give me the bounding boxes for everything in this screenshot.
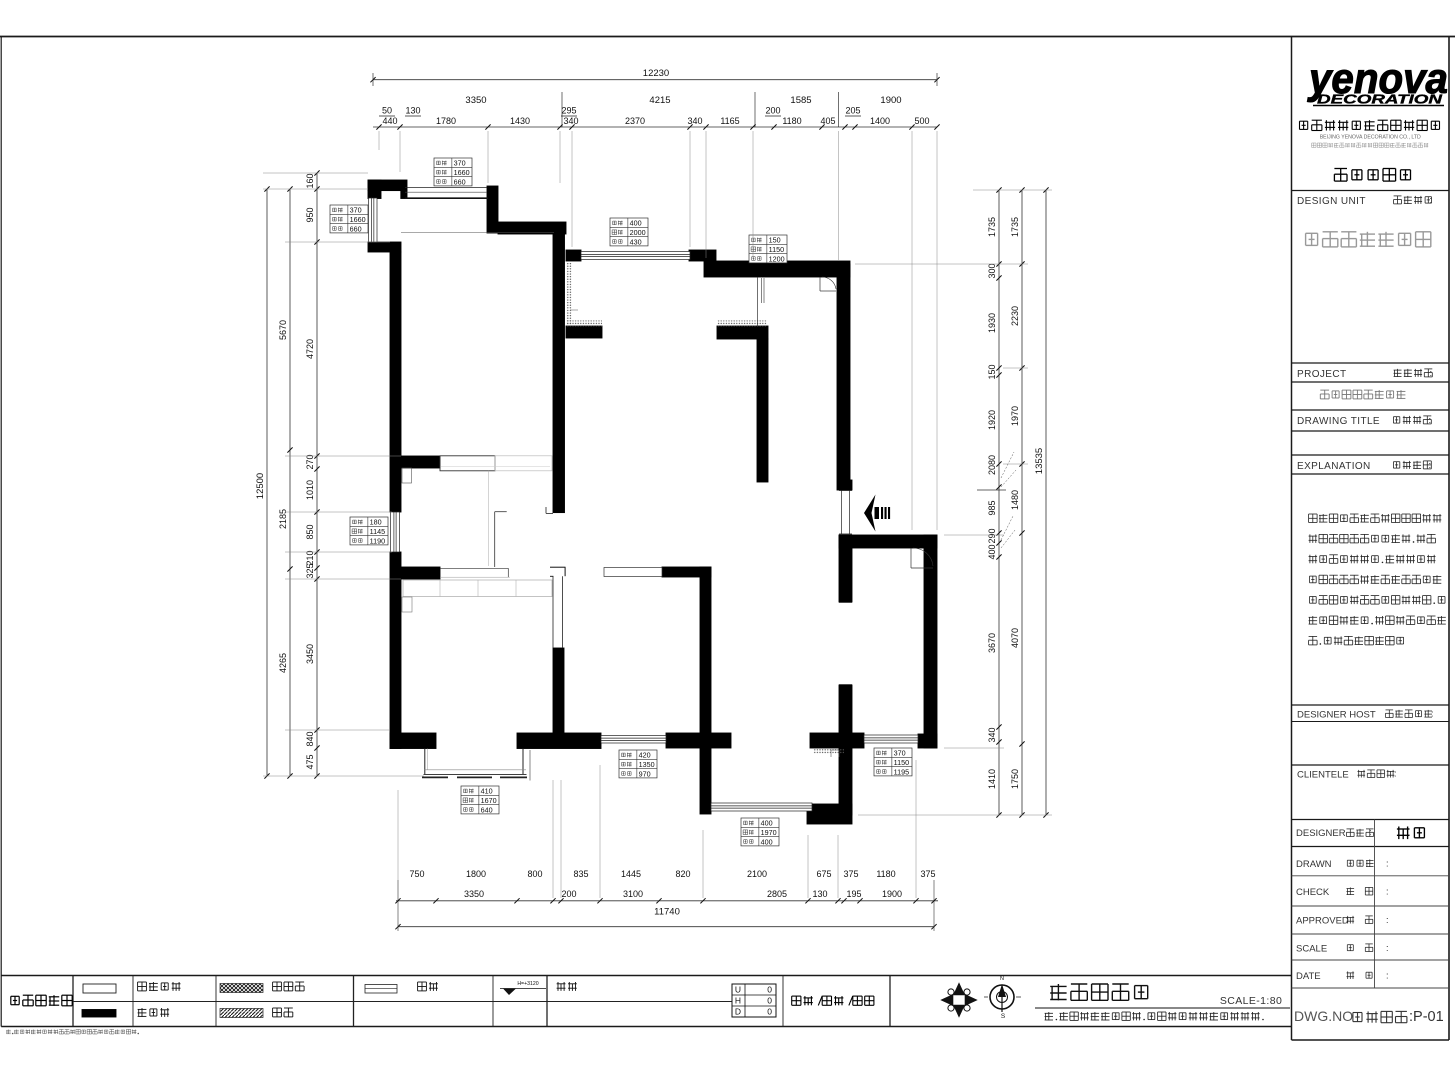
- svg-text:PROJECT: PROJECT: [1297, 369, 1346, 380]
- svg-text:3350: 3350: [464, 889, 484, 899]
- svg-text:50: 50: [382, 106, 392, 116]
- svg-text::: :: [1429, 415, 1432, 426]
- svg-text:200: 200: [561, 889, 576, 899]
- svg-text:1180: 1180: [782, 116, 801, 126]
- svg-text:150: 150: [987, 364, 997, 379]
- svg-text:475: 475: [305, 754, 315, 769]
- svg-text:1445: 1445: [621, 869, 641, 879]
- svg-text:DATE: DATE: [1296, 971, 1321, 982]
- svg-text:2000: 2000: [630, 228, 646, 237]
- svg-text:4265: 4265: [278, 653, 288, 673]
- svg-text:1660: 1660: [350, 215, 366, 224]
- svg-text:1010: 1010: [305, 480, 315, 500]
- svg-text:210: 210: [305, 550, 315, 565]
- svg-text:150: 150: [769, 236, 781, 245]
- svg-text:1660: 1660: [454, 168, 470, 177]
- svg-text:3100: 3100: [623, 889, 643, 899]
- svg-text:EXPLANATION: EXPLANATION: [1297, 461, 1371, 472]
- svg-text:1150: 1150: [894, 758, 909, 767]
- svg-text:405: 405: [820, 116, 835, 126]
- svg-text:3450: 3450: [305, 644, 315, 664]
- svg-text:1735: 1735: [987, 217, 997, 237]
- svg-text:1670: 1670: [481, 796, 497, 805]
- svg-text:APPROVED: APPROVED: [1296, 916, 1349, 927]
- svg-text:1350: 1350: [639, 760, 655, 769]
- svg-text:660: 660: [454, 177, 466, 186]
- svg-text:U: U: [735, 985, 741, 995]
- svg-text:D: D: [735, 1007, 741, 1017]
- svg-text:12500: 12500: [255, 473, 266, 499]
- svg-text:270: 270: [305, 454, 315, 469]
- svg-text:820: 820: [675, 869, 690, 879]
- svg-text::: :: [1369, 827, 1372, 837]
- svg-text:DRAWN: DRAWN: [1296, 859, 1332, 870]
- svg-text:985: 985: [987, 500, 997, 515]
- svg-text:N: N: [1000, 976, 1004, 982]
- svg-text:200: 200: [765, 106, 780, 116]
- svg-text::: :: [1386, 943, 1389, 953]
- svg-text:800: 800: [527, 869, 542, 879]
- svg-text:1970: 1970: [1010, 406, 1020, 426]
- svg-text:1900: 1900: [880, 95, 901, 106]
- svg-text:130: 130: [405, 106, 420, 116]
- svg-text:1585: 1585: [790, 95, 811, 106]
- svg-text:2100: 2100: [747, 869, 767, 879]
- svg-text:1150: 1150: [769, 245, 784, 254]
- svg-text::: :: [1386, 971, 1389, 981]
- svg-text:295: 295: [561, 106, 576, 116]
- svg-text:1920: 1920: [987, 410, 997, 430]
- svg-text:340: 340: [563, 116, 578, 126]
- svg-text:410: 410: [481, 787, 493, 796]
- svg-text:400: 400: [761, 837, 773, 846]
- svg-text:640: 640: [481, 805, 493, 814]
- svg-text::: :: [1430, 368, 1433, 379]
- svg-text:2230: 2230: [1010, 306, 1020, 326]
- svg-text:1930: 1930: [987, 313, 997, 333]
- svg-text:370: 370: [894, 749, 906, 758]
- svg-text:1165: 1165: [720, 116, 739, 126]
- svg-text:950: 950: [305, 207, 315, 222]
- svg-text:SCALE: SCALE: [1296, 944, 1327, 955]
- svg-text:340: 340: [987, 727, 997, 742]
- svg-text::: :: [1386, 887, 1389, 897]
- svg-text:1145: 1145: [370, 527, 385, 536]
- svg-text:750: 750: [409, 869, 424, 879]
- svg-text:BEIJING YENOVA DECORATION C: BEIJING YENOVA DECORATION CO., LTD: [1320, 135, 1421, 141]
- svg-text:DESIGN UNIT: DESIGN UNIT: [1297, 196, 1366, 207]
- svg-text:205: 205: [845, 106, 860, 116]
- svg-text:1410: 1410: [987, 769, 997, 789]
- svg-text:4720: 4720: [305, 339, 315, 359]
- svg-text:3670: 3670: [987, 633, 997, 653]
- svg-text:375: 375: [920, 869, 935, 879]
- svg-text:13535: 13535: [1034, 448, 1045, 474]
- svg-text:4070: 4070: [1010, 628, 1020, 648]
- svg-text:325: 325: [305, 563, 315, 578]
- svg-text:5670: 5670: [278, 320, 288, 340]
- svg-text:500: 500: [914, 116, 929, 126]
- svg-text:S: S: [1001, 1013, 1006, 1020]
- svg-text:SCALE-1:80: SCALE-1:80: [1220, 995, 1282, 1007]
- svg-text:H: H: [735, 996, 741, 1006]
- svg-text:CLIENTELE: CLIENTELE: [1297, 770, 1349, 781]
- svg-text:1190: 1190: [370, 536, 385, 545]
- svg-text:DESIGNER: DESIGNER: [1296, 828, 1346, 839]
- svg-text:1195: 1195: [894, 767, 909, 776]
- svg-text:375: 375: [843, 869, 858, 879]
- svg-text:835: 835: [573, 869, 588, 879]
- svg-text:4215: 4215: [649, 95, 670, 106]
- svg-text:180: 180: [370, 518, 382, 527]
- svg-text:1430: 1430: [510, 116, 530, 126]
- svg-text:0: 0: [767, 985, 772, 995]
- svg-text:1970: 1970: [761, 828, 777, 837]
- svg-text:2370: 2370: [625, 116, 645, 126]
- svg-text:1480: 1480: [1010, 490, 1020, 510]
- svg-text:440: 440: [382, 116, 397, 126]
- svg-text:1780: 1780: [436, 116, 456, 126]
- svg-text:1200: 1200: [769, 254, 785, 263]
- svg-text:400: 400: [630, 219, 642, 228]
- svg-text::: :: [1386, 859, 1389, 869]
- svg-text:370: 370: [454, 159, 466, 168]
- svg-text:0: 0: [767, 1007, 772, 1017]
- svg-text:400: 400: [987, 544, 997, 559]
- svg-text::: :: [1394, 769, 1397, 779]
- svg-text:660: 660: [350, 224, 362, 233]
- svg-text:2080: 2080: [987, 455, 997, 475]
- svg-text::: :: [1429, 460, 1432, 471]
- svg-text:160: 160: [305, 173, 315, 188]
- svg-text:3350: 3350: [465, 95, 486, 106]
- svg-text:1800: 1800: [466, 869, 486, 879]
- svg-text::P-01: :P-01: [1409, 1009, 1444, 1025]
- svg-text::: :: [1430, 195, 1433, 206]
- svg-text:130: 130: [812, 889, 827, 899]
- svg-text:430: 430: [630, 237, 642, 246]
- svg-text:DESIGNER HOST: DESIGNER HOST: [1297, 710, 1376, 721]
- svg-text:12230: 12230: [643, 68, 669, 79]
- svg-text:CHECK: CHECK: [1296, 887, 1330, 898]
- svg-text:1180: 1180: [876, 869, 895, 879]
- svg-text:11740: 11740: [654, 907, 680, 918]
- svg-text:970: 970: [639, 769, 651, 778]
- svg-text:840: 840: [305, 731, 315, 746]
- svg-text:1750: 1750: [1010, 769, 1020, 789]
- svg-text:300: 300: [987, 263, 997, 278]
- svg-text:DECORATION: DECORATION: [1317, 93, 1443, 107]
- svg-text:DRAWING TITLE: DRAWING TITLE: [1297, 416, 1380, 427]
- svg-text:2805: 2805: [767, 889, 787, 899]
- svg-text:290: 290: [987, 528, 997, 543]
- svg-text:370: 370: [350, 206, 362, 215]
- svg-text:H=+3120: H=+3120: [517, 981, 538, 987]
- svg-text::: :: [1431, 709, 1434, 719]
- svg-text:850: 850: [305, 524, 315, 539]
- svg-text:420: 420: [639, 751, 651, 760]
- svg-text:340: 340: [687, 116, 702, 126]
- svg-text:1900: 1900: [882, 889, 902, 899]
- svg-text:0: 0: [767, 996, 772, 1006]
- svg-text:1400: 1400: [870, 116, 890, 126]
- svg-text:400: 400: [761, 819, 773, 828]
- svg-text:1735: 1735: [1010, 217, 1020, 237]
- svg-text:DWG.NO: DWG.NO: [1294, 1008, 1353, 1024]
- svg-text:195: 195: [846, 889, 861, 899]
- svg-text:675: 675: [816, 869, 831, 879]
- svg-text::: :: [1386, 915, 1389, 925]
